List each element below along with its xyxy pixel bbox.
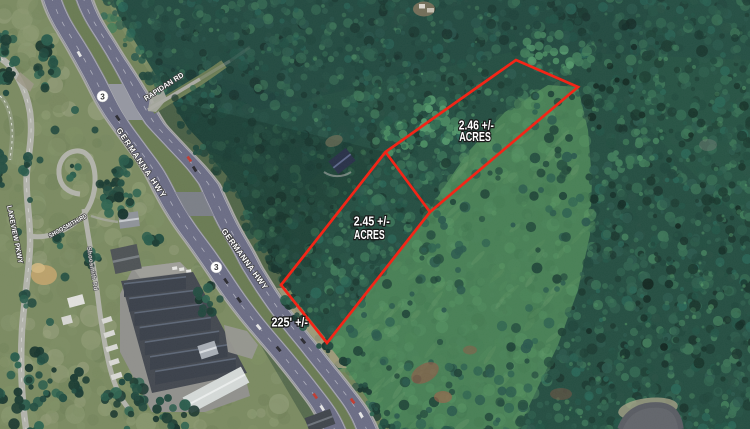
svg-text:ACRES: ACRES bbox=[459, 130, 491, 144]
svg-text:3: 3 bbox=[100, 92, 105, 101]
svg-text:225' +/-: 225' +/- bbox=[272, 316, 309, 330]
svg-text:2.45 +/-: 2.45 +/- bbox=[354, 215, 390, 229]
svg-text:3: 3 bbox=[214, 263, 219, 272]
svg-text:ACRES: ACRES bbox=[354, 229, 385, 243]
